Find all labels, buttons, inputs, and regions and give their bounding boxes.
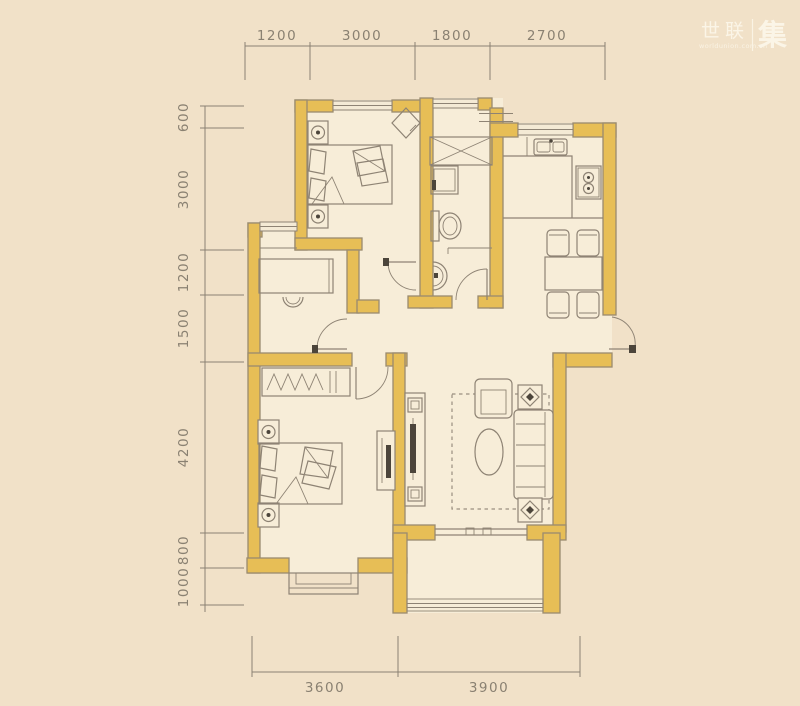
dining-table bbox=[545, 257, 602, 290]
dining-chair bbox=[547, 292, 569, 318]
wall-bedroomB-bottom-left bbox=[247, 558, 289, 573]
dining-chair bbox=[577, 292, 599, 318]
wall-bathroom-bottom-stub bbox=[478, 296, 503, 308]
logo-seal-text: 集 bbox=[757, 18, 788, 52]
wall-balcony-left bbox=[393, 533, 407, 613]
dim-label: 2700 bbox=[527, 28, 567, 44]
dining-chair bbox=[577, 230, 599, 256]
dim-label: 800 bbox=[176, 535, 192, 565]
dim-label: 1500 bbox=[176, 308, 192, 348]
dim-label: 3600 bbox=[305, 680, 345, 696]
logo-brand-text: 世联 bbox=[701, 20, 749, 42]
wall-living-right bbox=[553, 353, 566, 532]
dimension-left: 600 3000 1200 1500 4200 800 1000 bbox=[176, 102, 244, 612]
wall-balcony-right bbox=[543, 533, 560, 613]
dim-label: 1200 bbox=[176, 252, 192, 292]
wall-bathroom-bottom bbox=[408, 296, 452, 308]
wall-bedroomA-bottom bbox=[295, 238, 362, 250]
bedroomA-window bbox=[333, 101, 392, 110]
sofa bbox=[514, 410, 553, 499]
wall-hall-stub bbox=[357, 300, 379, 313]
tv-icon bbox=[386, 445, 391, 478]
dining-chair bbox=[547, 230, 569, 256]
wall-kitchen-top-left bbox=[490, 123, 518, 137]
dimension-bottom: 3600 3900 bbox=[252, 636, 580, 696]
dim-label: 4200 bbox=[176, 427, 192, 467]
entry-door bbox=[609, 317, 636, 353]
dim-label: 1000 bbox=[176, 567, 192, 607]
wall-bathroom-left bbox=[420, 98, 433, 308]
dim-label: 1200 bbox=[257, 28, 297, 44]
kitchen-window bbox=[518, 124, 573, 135]
dim-label: 600 bbox=[176, 102, 192, 132]
coffee-table bbox=[475, 429, 503, 475]
dim-label: 3900 bbox=[469, 680, 509, 696]
floor-plan-canvas: 1200 3000 1800 2700 600 3000 1200 1500 4… bbox=[0, 0, 800, 706]
side-table-plant-icon bbox=[518, 385, 542, 409]
bedroomB-bay-window bbox=[289, 573, 358, 594]
dimension-top: 1200 3000 1800 2700 bbox=[245, 28, 605, 80]
bathroom-window bbox=[433, 99, 478, 108]
wall-study-bottom bbox=[248, 353, 352, 366]
side-table-plant-icon bbox=[518, 498, 542, 522]
brand-logo: 世联 worldunion.com.cn 集 bbox=[699, 18, 788, 52]
armchair bbox=[475, 379, 512, 418]
dim-label: 3000 bbox=[342, 28, 382, 44]
dim-label: 3000 bbox=[176, 169, 192, 209]
wall-kitchen-right bbox=[603, 123, 616, 315]
tv-icon bbox=[410, 424, 416, 473]
dim-label: 1800 bbox=[432, 28, 472, 44]
